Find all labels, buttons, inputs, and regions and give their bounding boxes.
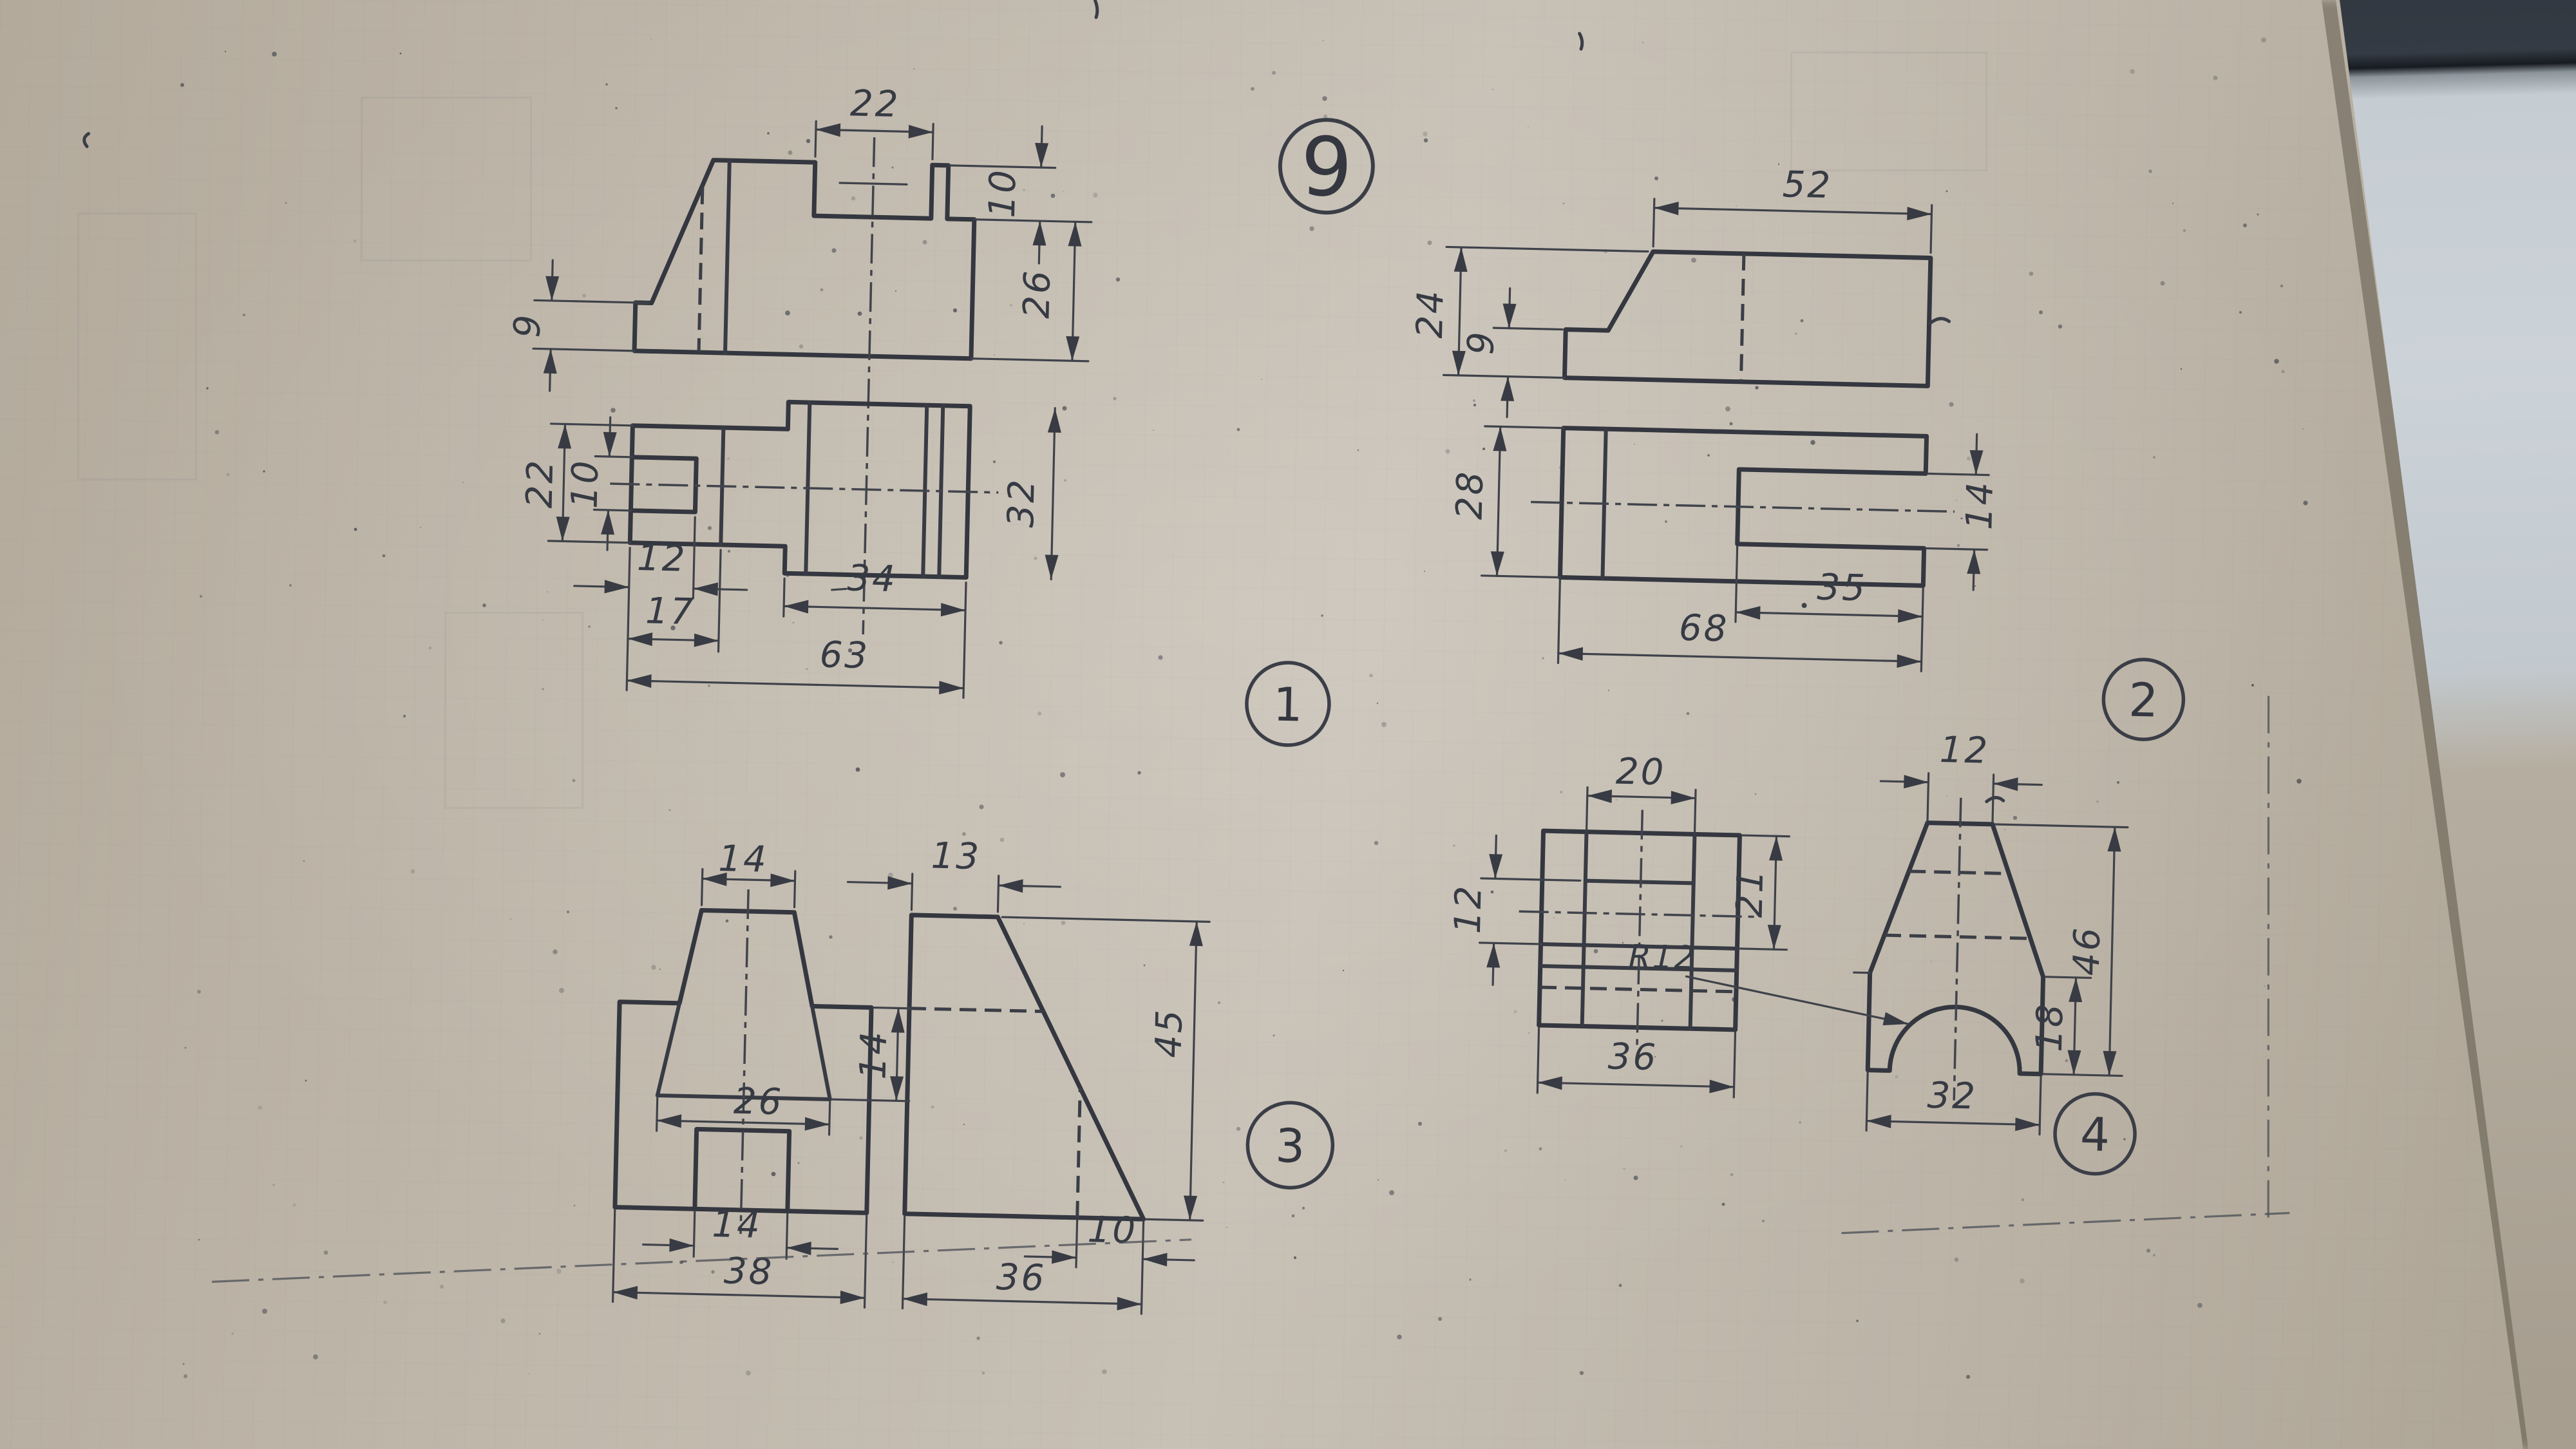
dim-label: 45: [1148, 1008, 1191, 1059]
sheet-number-badge: 9: [1279, 119, 1374, 216]
problem-2-dimensions: 52 24 9 28 14 35 68: [1402, 155, 2009, 673]
problem-2-badge: 2: [2103, 659, 2184, 741]
dim-label: 68: [1678, 607, 1729, 650]
drawing-ink-layer: 22 10 26 9 22 10 12 17 34 63 32: [0, 0, 2576, 1449]
dim-label: 28: [1448, 469, 1492, 520]
problem-3-badge: 3: [1247, 1102, 1334, 1189]
dim-label: 36: [1607, 1036, 1658, 1079]
dim-label: 13: [931, 835, 981, 878]
problem-number: 2: [2128, 673, 2159, 728]
dim-label: 18: [2029, 1002, 2072, 1053]
problem-1-badge: 1: [1245, 662, 1330, 746]
sheet-number: 9: [1300, 119, 1353, 215]
dim-label: 24: [1409, 289, 1452, 339]
photo-of-drawing-sheet: 22 10 26 9 22 10 12 17 34 63 32: [0, 0, 2576, 1449]
dim-label: 22: [518, 458, 562, 509]
problem-number: 3: [1274, 1119, 1305, 1173]
dim-label: 14: [1958, 480, 2002, 531]
dim-label: 9: [506, 312, 549, 338]
problem-4-top-view: [1516, 807, 1762, 1054]
dim-label: R12: [1628, 938, 1696, 976]
dim-label: 63: [819, 634, 870, 677]
dim-label: 12: [1939, 729, 1990, 772]
paper-speckles: [180, 37, 2308, 1379]
dim-label: 14: [712, 1204, 762, 1247]
dim-label: 21: [1729, 867, 1772, 918]
problem-number: 4: [2079, 1107, 2110, 1162]
dim-label: 20: [1615, 751, 1666, 794]
problem-3-front-view: [614, 887, 874, 1237]
dim-label: 26: [733, 1081, 784, 1124]
problem-4-badge: 4: [2054, 1093, 2136, 1175]
dim-label: 12: [636, 537, 687, 580]
problem-4-front-view: [1867, 796, 2047, 1103]
dim-label: 22: [849, 82, 900, 126]
stray-marks: [70, 0, 2021, 802]
dim-label: 26: [1016, 269, 1059, 319]
dim-label: 10: [981, 167, 1025, 218]
problem-2-top-view: [1529, 428, 1956, 587]
dim-label: 32: [1000, 477, 1043, 528]
dim-label: 12: [1447, 884, 1490, 934]
dim-label: 32: [1927, 1075, 1978, 1118]
problem-3-side-view: [905, 915, 1150, 1219]
dim-label: 17: [645, 590, 696, 633]
dim-label: 52: [1782, 164, 1833, 207]
dim-label: 10: [563, 459, 607, 509]
dim-label: 10: [1087, 1209, 1138, 1252]
problem-number: 1: [1273, 677, 1303, 732]
dim-label: 14: [853, 1029, 896, 1080]
dim-label: 38: [723, 1250, 774, 1293]
dimension-arrowheads: [522, 117, 2137, 1332]
dim-label: 9: [1460, 330, 1502, 355]
dim-label: 34: [847, 557, 898, 600]
dim-label: 36: [996, 1256, 1046, 1300]
problem-2-front-view: [1564, 250, 1930, 386]
dim-label: 46: [2066, 925, 2109, 976]
dim-label: 35: [1817, 567, 1868, 610]
